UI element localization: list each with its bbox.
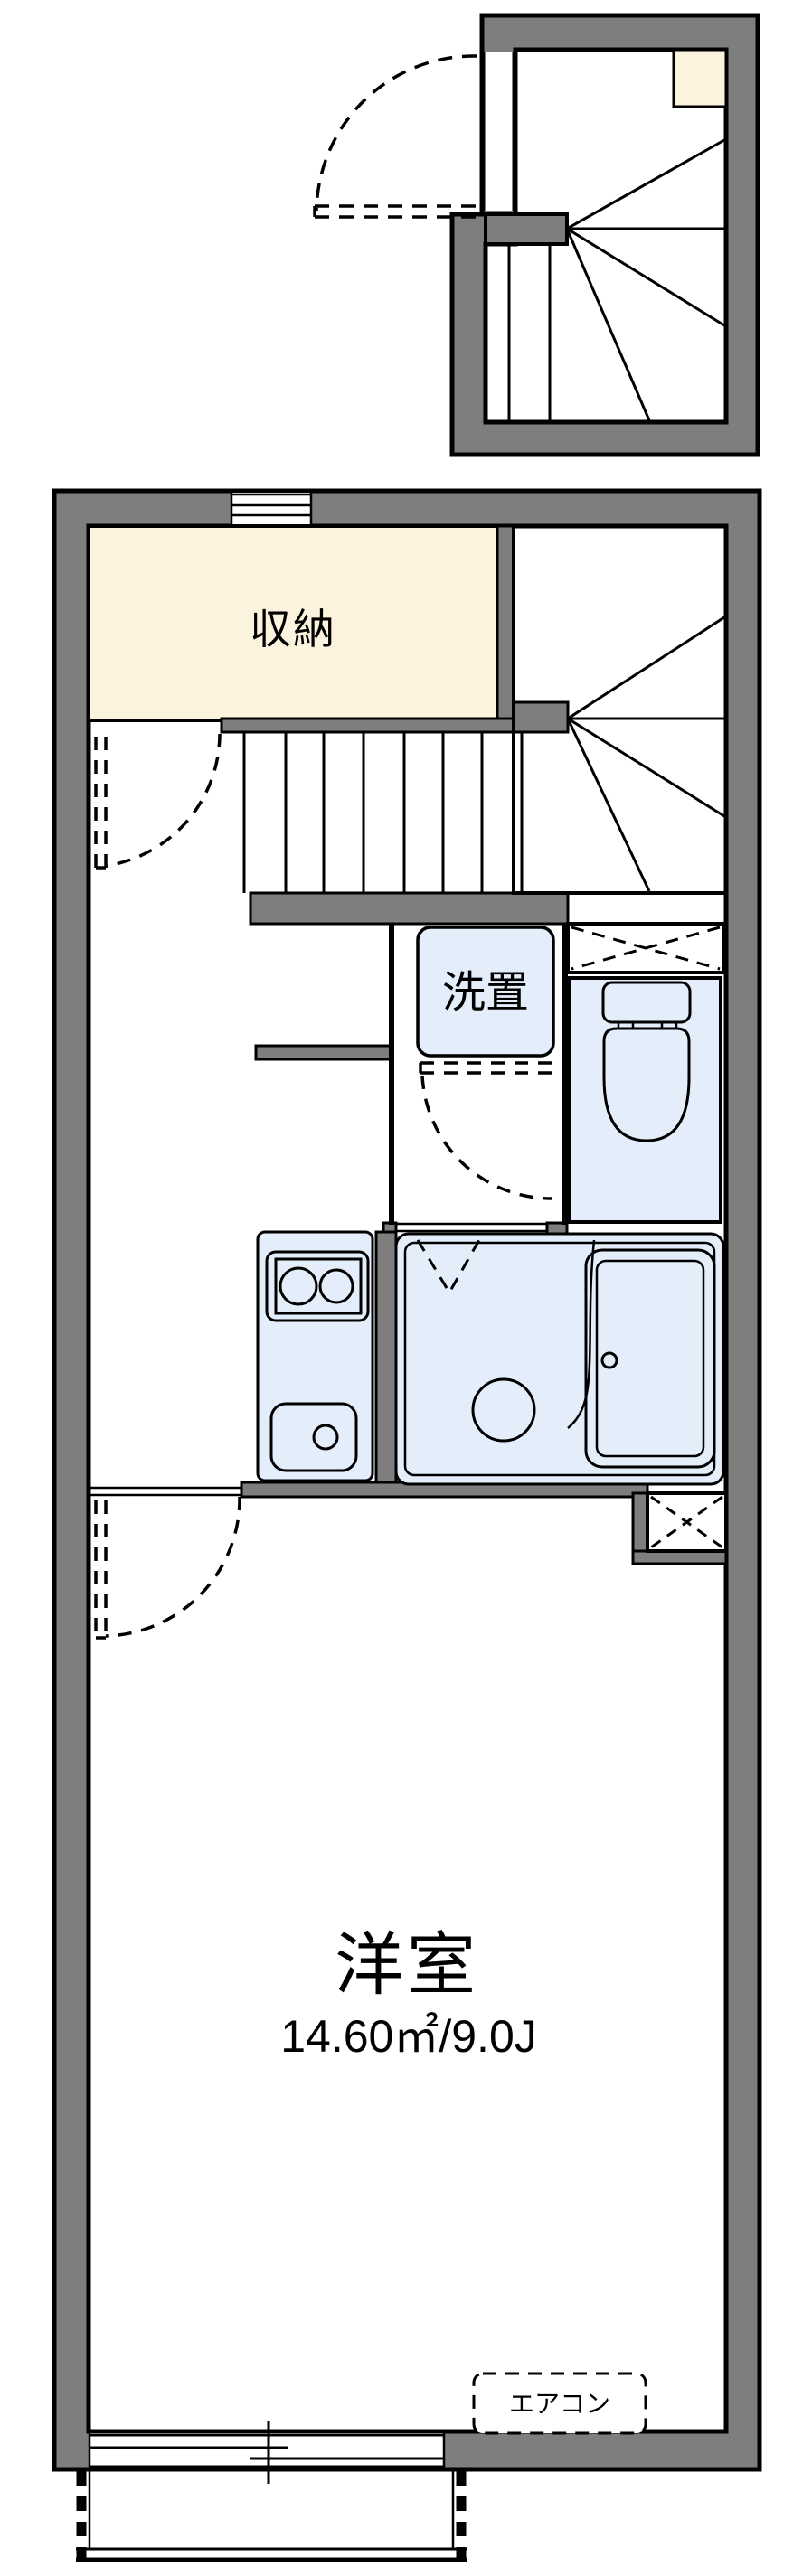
upper-closet — [674, 50, 726, 107]
bath-doorway — [396, 1224, 547, 1231]
toilet-bowl — [604, 1029, 689, 1141]
washroom-door-swing — [420, 1063, 553, 1199]
aircon-label: エアコン — [509, 2390, 610, 2418]
storage-door-swing — [96, 734, 220, 868]
upper-door-opening — [484, 52, 514, 211]
upper-stair-stub-wall — [486, 214, 567, 244]
upper-stairwell — [315, 15, 758, 455]
top-window — [231, 493, 312, 525]
cross-box-top — [568, 924, 723, 973]
upper-staircase — [509, 140, 724, 420]
balcony — [76, 2469, 467, 2563]
main-room-door — [89, 1488, 241, 1638]
bathroom — [396, 1234, 723, 1484]
toilet-tank — [603, 982, 690, 1022]
kitchen — [258, 1232, 373, 1481]
main-room-label: 洋室 — [335, 1927, 479, 2004]
storage-label: 収納 — [250, 606, 336, 653]
floor-plan-drawing: 収納 洗置 洋室 14.60㎡/9.0J エアコン — [0, 0, 812, 2576]
main-room-size-label: 14.60㎡/9.0J — [280, 2011, 537, 2062]
washer-label: 洗置 — [442, 969, 529, 1017]
toilet-room — [570, 978, 721, 1222]
floor-plan: 収納 洗置 洋室 14.60㎡/9.0J エアコン — [0, 0, 812, 2576]
main-staircase-run — [244, 732, 522, 893]
cross-box-bottom — [647, 1493, 726, 1551]
washroom-left-wall — [389, 924, 394, 1225]
main-unit — [54, 491, 760, 2563]
upper-door-swing — [315, 56, 479, 217]
